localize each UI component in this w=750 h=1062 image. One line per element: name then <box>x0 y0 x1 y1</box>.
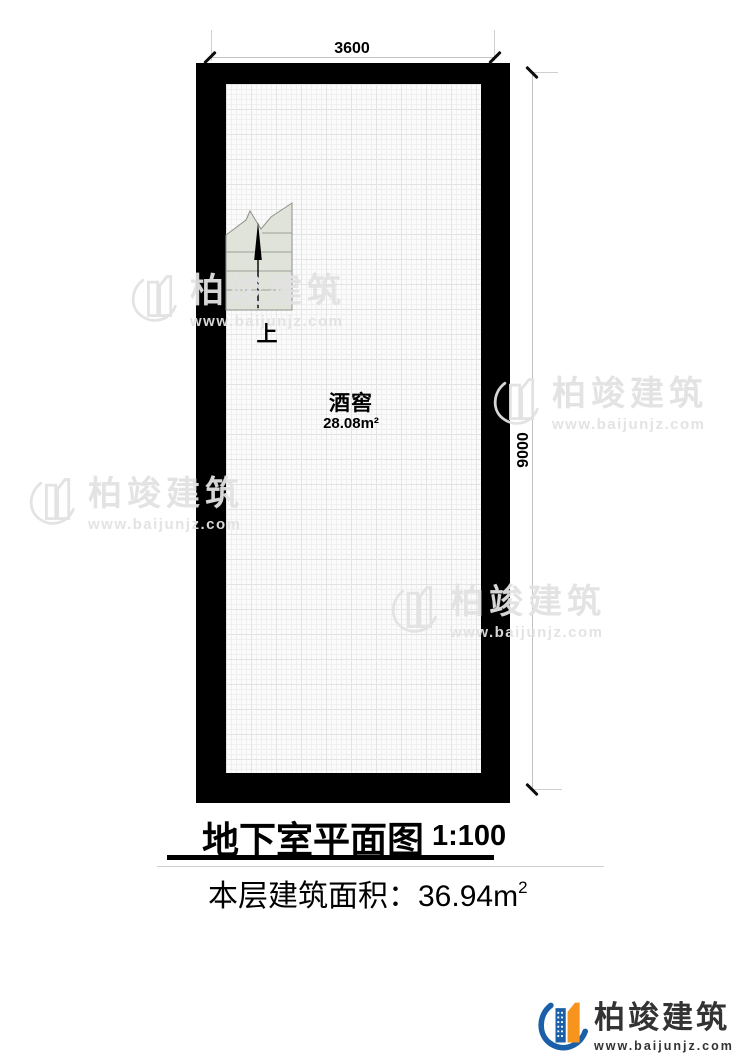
room-label: 酒窖 28.08m² <box>286 392 416 433</box>
watermark-url: www.baijunjz.com <box>552 416 708 433</box>
floor-area-line: 本层建筑面积：36.94m2 <box>208 871 528 915</box>
watermark: 柏竣建筑 www.baijunjz.com <box>26 466 244 533</box>
title-underline <box>167 855 494 860</box>
watermark-url: www.baijunjz.com <box>450 624 606 641</box>
baijun-logo-icon <box>536 994 588 1052</box>
room-area: 28.08m² <box>286 416 416 433</box>
floor-area-value: 36.94m <box>418 880 518 913</box>
watermark-logo-icon <box>26 470 78 530</box>
watermark-name: 柏竣建筑 <box>88 466 244 515</box>
logo-company-name: 柏竣建筑 <box>594 992 734 1037</box>
drawing-scale: 1:100 <box>432 820 506 853</box>
floor-area-label: 本层建筑面积： <box>208 880 418 913</box>
logo-website: www.baijunjz.com <box>594 1039 734 1053</box>
watermark-logo-icon <box>388 578 440 638</box>
watermark-name: 柏竣建筑 <box>190 263 346 312</box>
watermark-logo-icon <box>128 267 180 327</box>
dimension-value-top: 3600 <box>317 40 387 58</box>
title-underline-thin <box>157 866 604 867</box>
extension-line-right-top <box>533 72 558 73</box>
watermark: 柏竣建筑 www.baijunjz.com <box>128 263 346 330</box>
watermark: 柏竣建筑 www.baijunjz.com <box>490 366 708 433</box>
watermark-url: www.baijunjz.com <box>88 516 244 533</box>
extension-line-right-bottom <box>533 789 562 790</box>
watermark: 柏竣建筑 www.baijunjz.com <box>388 574 606 641</box>
watermark-name: 柏竣建筑 <box>450 574 606 623</box>
watermark-name: 柏竣建筑 <box>552 366 708 415</box>
watermark-logo-icon <box>490 370 542 430</box>
floor-area-sup: 2 <box>518 878 527 897</box>
company-logo: 柏竣建筑 www.baijunjz.com <box>536 992 734 1053</box>
watermark-url: www.baijunjz.com <box>190 313 346 330</box>
room-name: 酒窖 <box>286 392 416 415</box>
